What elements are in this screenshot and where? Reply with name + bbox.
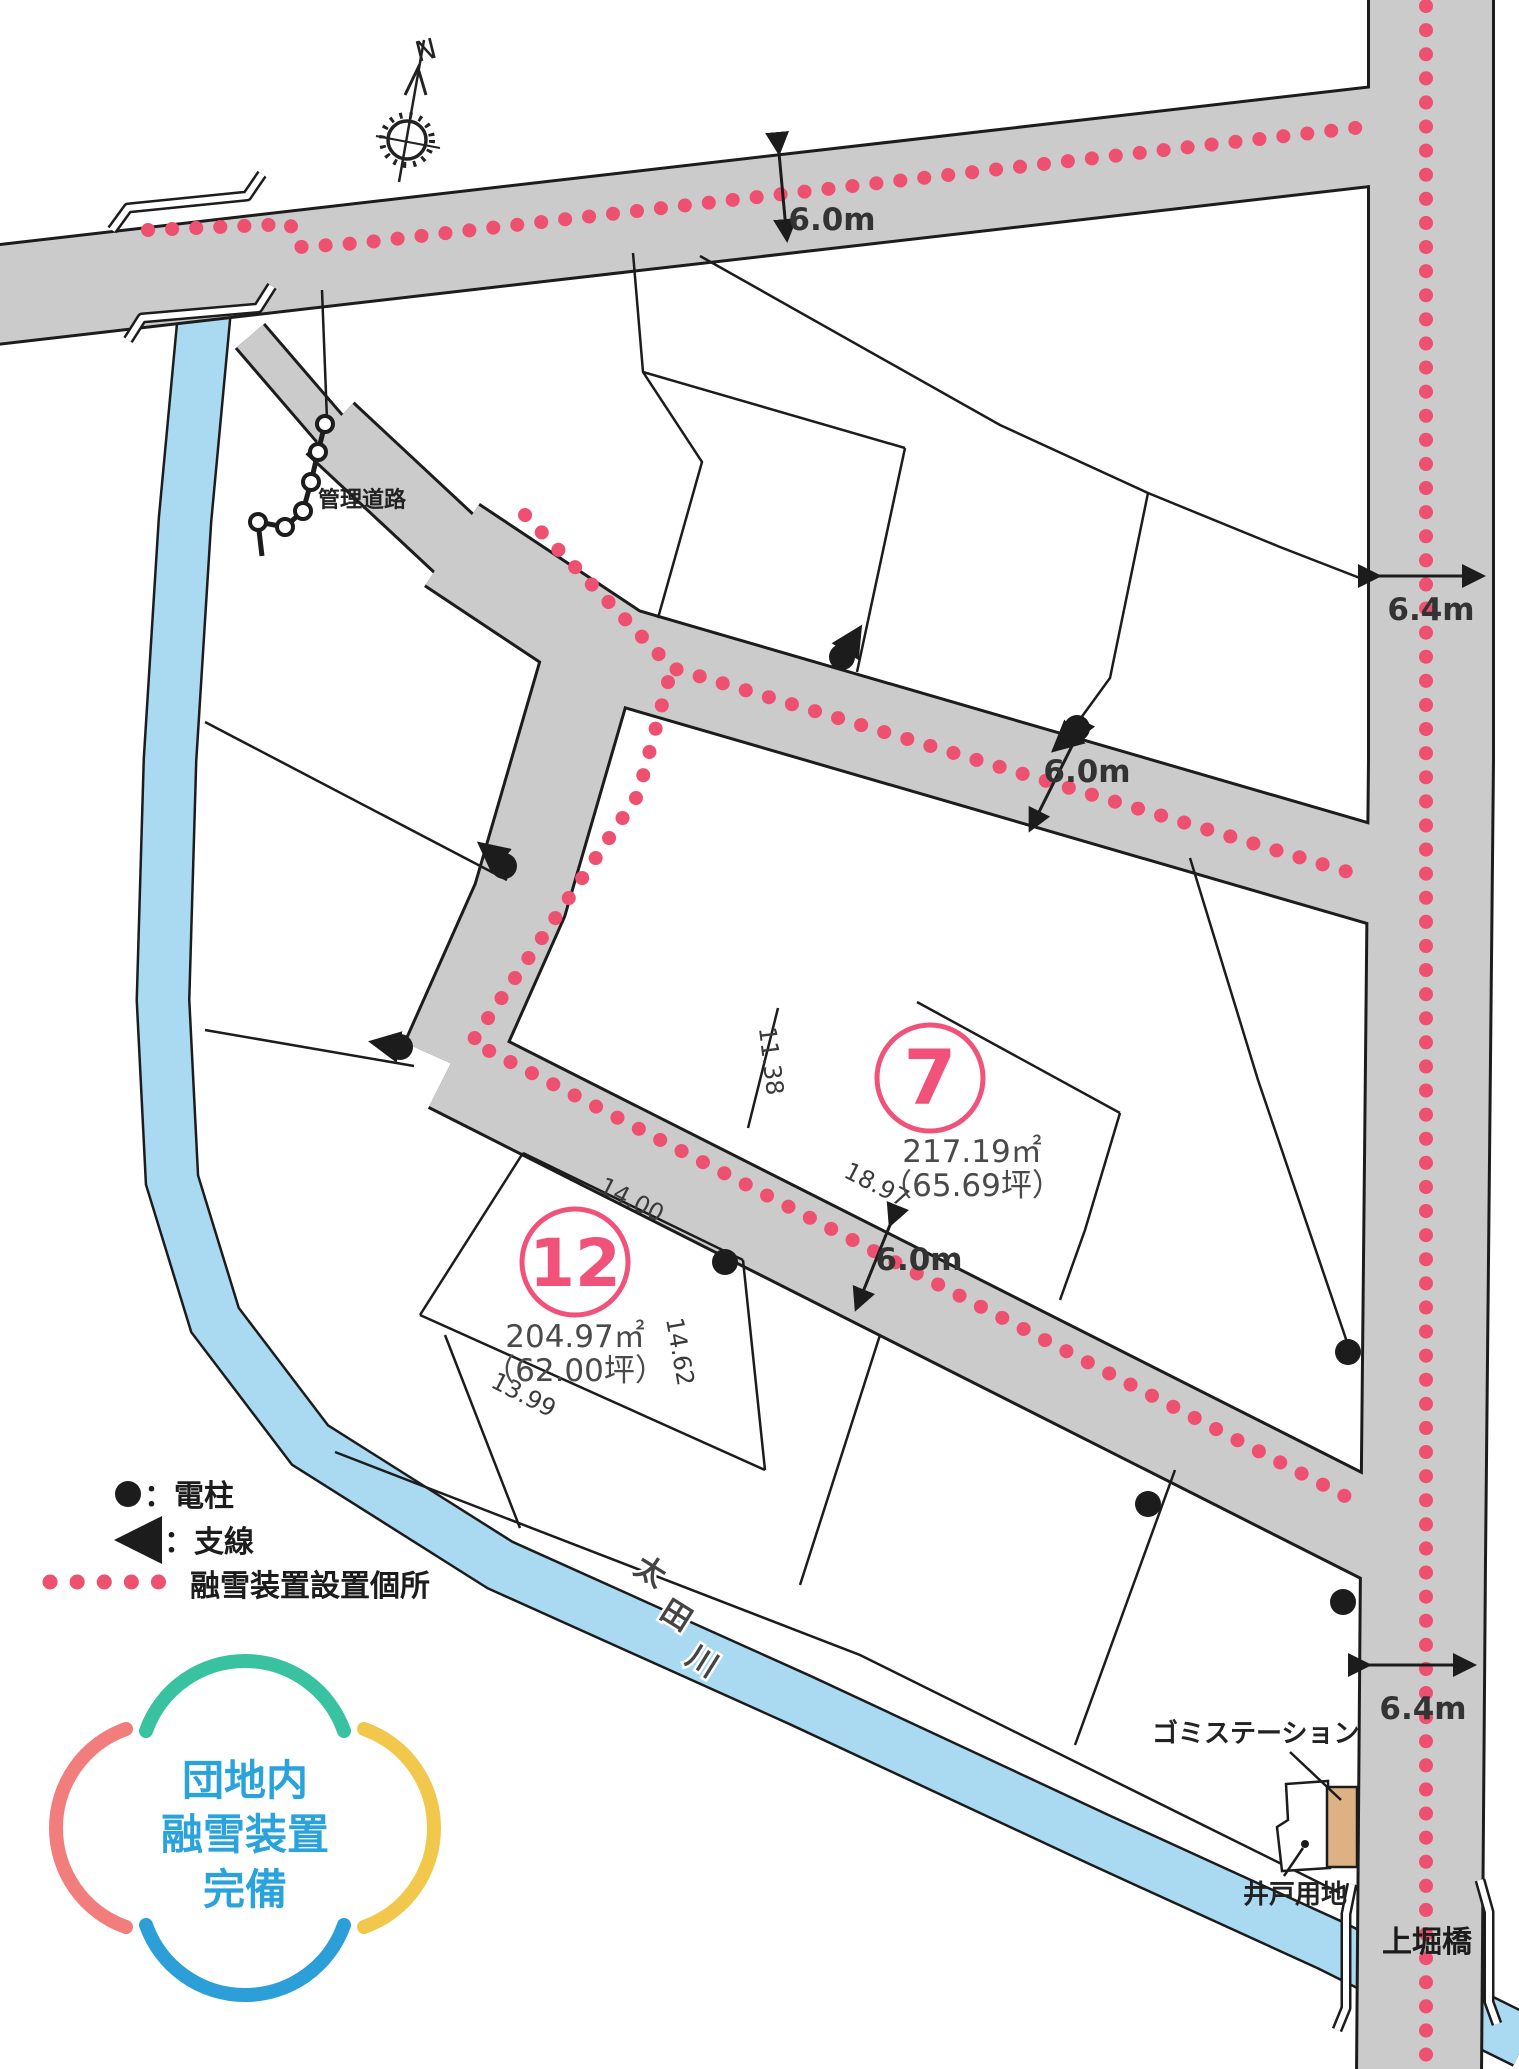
road-width-label: 6.0m [875,1242,962,1278]
snowmelt-dotted-lines [148,6,1426,2062]
lot-12-number: 12 [529,1225,621,1302]
road-width-label: 6.4m [1379,1691,1466,1727]
lot-7: 7 217.19㎡ （65.69坪） [877,1025,1063,1204]
pole-icon [1330,1589,1356,1615]
legend-guy-label: ：支線 [164,1525,254,1560]
legend-pole-dot-icon [115,1481,141,1507]
well-site-label: 井戸用地 [1243,1880,1347,1910]
edge-dim: 14.62 [660,1315,700,1388]
road-inner-left [448,652,592,1062]
pole-icon [712,1249,738,1275]
well-site-parcel [1277,1781,1330,1871]
lot-7-number: 7 [904,1033,957,1122]
badge-arc-top [146,1661,344,1731]
lot-12-area-m2: 204.97㎡ [505,1319,644,1355]
lot-12-area-tsubo: （62.00坪） [484,1353,666,1389]
badge-line1: 団地内 [182,1756,308,1805]
map-canvas: 管理道路 N [0,0,1519,2069]
lot-7-area-m2: 217.19㎡ [902,1134,1041,1170]
garbage-station-label: ゴミステーション [1152,1718,1359,1749]
pole-icon [1135,1491,1161,1517]
road-top [0,130,1428,296]
legend-snowmelt-label: 融雪装置設置個所 [190,1569,430,1604]
road-width-label: 6.4m [1387,592,1474,628]
badge-line3: 完備 [203,1865,287,1914]
management-road-label: 管理道路 [318,487,407,513]
garbage-station-box [1327,1787,1357,1867]
lot-7-area-tsubo: （65.69坪） [881,1168,1063,1204]
badge-arc-right [364,1729,434,1927]
compass-n-label: N [412,32,440,69]
guy-wire-icon [845,628,860,652]
snowmelt-badge: 団地内 融雪装置 完備 [56,1661,434,1995]
lot-12: 12 204.97㎡ （62.00坪） [484,1209,666,1389]
badge-arc-bottom [146,1925,344,1995]
pole-icon [1335,1339,1361,1365]
legend-pole-label: ：電柱 [144,1479,234,1514]
river-char: 太 [628,1549,673,1595]
badge-arc-left [56,1729,126,1927]
badge-line2: 融雪装置 [161,1810,329,1859]
road-width-label: 6.0m [1043,754,1130,790]
road-management-wedge [452,545,625,660]
subdivision-plat-map: 管理道路 N [0,0,1519,2069]
pole-icon [829,644,855,670]
road-width-label: 6.0m [788,202,875,238]
river-ota [163,295,1519,2042]
bridge-name-label: 上堀橋 [1382,1925,1473,1960]
compass-north-icon: N [376,32,440,182]
